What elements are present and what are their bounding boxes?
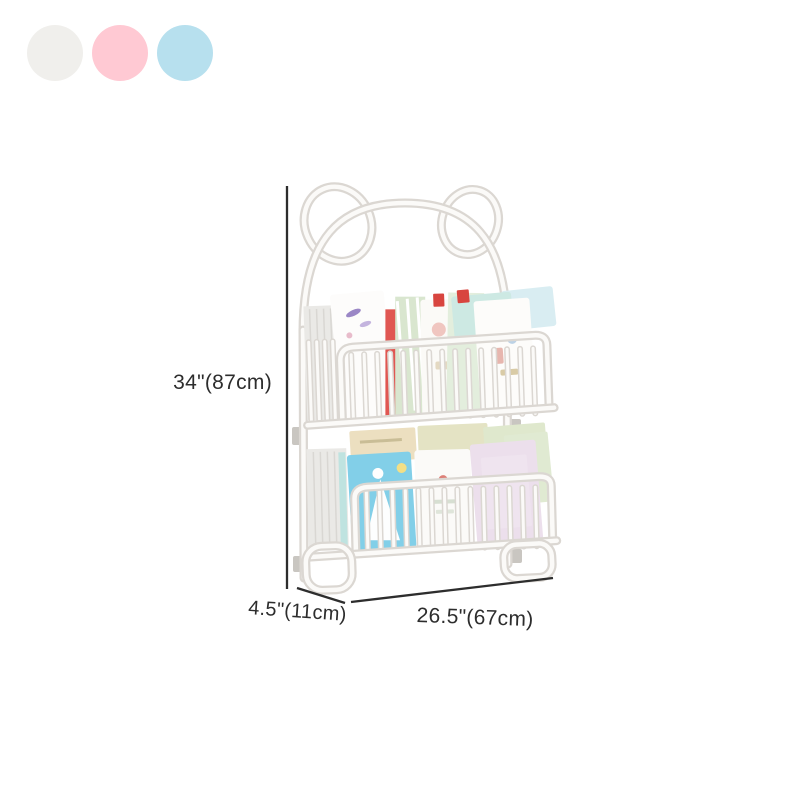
upper-shelf (303, 284, 560, 425)
product-listing-image: 34"(87cm) 4.5"(11cm) 26.5"(67cm) (0, 0, 800, 800)
height-dimension-label: 34"(87cm) (140, 371, 272, 395)
lower-shelf (306, 421, 557, 557)
book-tab (433, 293, 444, 306)
book-tab (457, 289, 470, 303)
product-photo-book-rack (0, 0, 800, 800)
width-dimension-line (351, 578, 553, 602)
width-dimension-label: 26.5"(67cm) (416, 604, 534, 632)
